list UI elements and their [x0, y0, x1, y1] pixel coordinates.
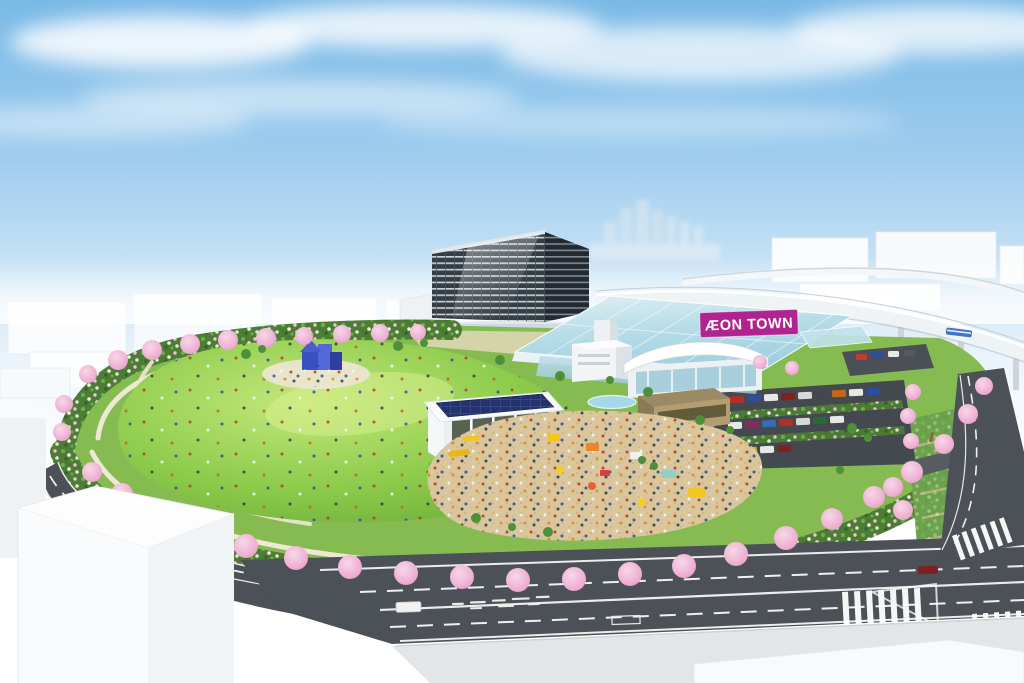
cherry-tree [450, 565, 474, 589]
rendering-canvas: ÆON TOWN [0, 0, 1024, 683]
parked-car [730, 396, 744, 404]
cherry-tree [958, 404, 978, 424]
cherry-tree [905, 384, 921, 400]
cherry-tree [753, 355, 767, 369]
cherry-tree [180, 334, 200, 354]
cherry-tree [394, 561, 418, 585]
parked-car [872, 352, 883, 358]
cherry-tree [562, 567, 586, 591]
cherry-tree [338, 555, 362, 579]
cherry-tree [218, 330, 238, 350]
cherry-tree [82, 462, 102, 482]
parked-car [832, 390, 846, 398]
pond [588, 396, 636, 409]
cherry-tree [903, 433, 919, 449]
parked-car [781, 393, 795, 401]
parked-car [866, 388, 880, 396]
sign-label: ÆON TOWN [705, 315, 794, 334]
cherry-tree [672, 554, 696, 578]
cherry-tree [295, 327, 313, 345]
cherry-tree [883, 477, 903, 497]
cherry-tree [333, 325, 351, 343]
cherry-tree [142, 340, 162, 360]
parked-car [745, 421, 759, 429]
parked-car [888, 351, 899, 357]
parked-car [849, 389, 863, 397]
cherry-tree [371, 324, 389, 342]
cherry-tree [821, 508, 843, 530]
parked-car [796, 418, 810, 426]
cherry-tree [234, 534, 258, 558]
cherry-tree [774, 526, 798, 550]
cherry-tree [506, 568, 530, 592]
scene: ÆON TOWN [0, 0, 1024, 683]
cherry-tree [79, 365, 97, 383]
cherry-tree [724, 542, 748, 566]
parked-car [779, 419, 793, 427]
cherry-tree [901, 461, 923, 483]
cherry-tree [934, 434, 954, 454]
parked-car [777, 445, 791, 453]
cherry-tree [284, 546, 308, 570]
cherry-tree [900, 408, 916, 424]
parked-car [764, 394, 778, 402]
cherry-tree [785, 361, 799, 375]
parked-car [747, 395, 761, 403]
cherry-tree [618, 562, 642, 586]
cherry-tree [108, 350, 128, 370]
car-on-main-road [396, 602, 421, 613]
car-on-main-road [918, 565, 938, 574]
parked-car [762, 420, 776, 428]
cherry-tree [410, 324, 426, 340]
cherry-tree [893, 500, 913, 520]
parked-car [847, 415, 861, 423]
cherry-tree [975, 377, 993, 395]
cherry-tree [256, 328, 276, 348]
parked-car [798, 392, 812, 400]
parked-car [856, 354, 867, 360]
parked-car [830, 416, 844, 424]
parked-car [813, 417, 827, 425]
parked-car [904, 350, 915, 356]
parked-car [815, 391, 829, 399]
cherry-tree [863, 486, 885, 508]
cherry-tree [53, 423, 71, 441]
cherry-tree [55, 395, 73, 413]
aeon-town-sign: ÆON TOWN [700, 309, 799, 337]
parked-car [760, 446, 774, 454]
